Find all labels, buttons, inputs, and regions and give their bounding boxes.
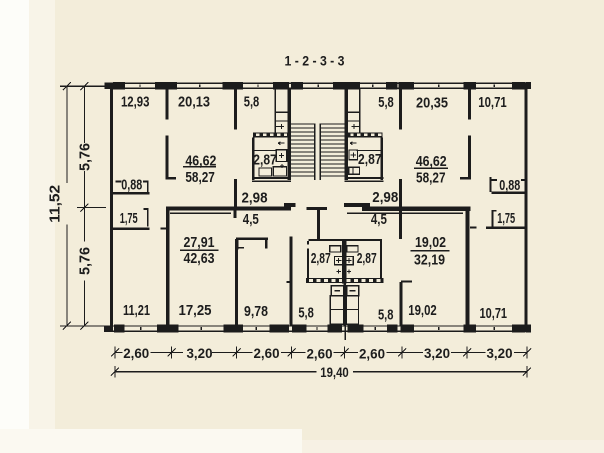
svg-text:10,71: 10,71 <box>478 94 507 111</box>
svg-text:2,87: 2,87 <box>358 151 382 168</box>
svg-text:3,20: 3,20 <box>424 345 450 361</box>
svg-text:42,63: 42,63 <box>184 250 215 267</box>
svg-text:2,60: 2,60 <box>123 345 149 361</box>
svg-text:12,93: 12,93 <box>121 93 150 110</box>
svg-text:19,02: 19,02 <box>415 234 446 251</box>
svg-text:20,35: 20,35 <box>416 95 448 112</box>
svg-text:11,21: 11,21 <box>123 302 150 319</box>
svg-text:58,27: 58,27 <box>185 169 215 186</box>
svg-text:5,8: 5,8 <box>378 306 394 323</box>
svg-text:58,27: 58,27 <box>416 170 446 187</box>
svg-text:2,87: 2,87 <box>311 250 331 267</box>
svg-text:3,20: 3,20 <box>187 345 213 361</box>
svg-text:17,25: 17,25 <box>179 302 212 319</box>
svg-text:19,40: 19,40 <box>320 364 349 380</box>
svg-text:3,20: 3,20 <box>487 345 513 361</box>
svg-text:2,87: 2,87 <box>357 250 377 267</box>
svg-text:0,88: 0,88 <box>499 177 520 194</box>
svg-text:5,8: 5,8 <box>244 93 260 110</box>
svg-text:19,02: 19,02 <box>408 302 437 319</box>
svg-text:46,62: 46,62 <box>416 153 447 170</box>
svg-text:4,5: 4,5 <box>371 211 387 228</box>
svg-text:5,76: 5,76 <box>77 247 94 275</box>
svg-text:0,88: 0,88 <box>121 176 142 193</box>
svg-text:2,98: 2,98 <box>372 189 398 206</box>
svg-text:4,5: 4,5 <box>243 211 259 228</box>
svg-text:10,71: 10,71 <box>480 305 508 322</box>
svg-text:20,13: 20,13 <box>178 93 210 110</box>
svg-text:1,75: 1,75 <box>497 210 515 227</box>
svg-text:5,8: 5,8 <box>298 305 314 322</box>
svg-text:2,60: 2,60 <box>359 346 385 362</box>
svg-text:9,78: 9,78 <box>244 303 268 320</box>
svg-text:2,60: 2,60 <box>307 345 333 361</box>
svg-text:2,87: 2,87 <box>253 151 277 168</box>
svg-text:5,8: 5,8 <box>378 94 394 111</box>
svg-text:2,60: 2,60 <box>254 345 280 361</box>
svg-text:1 - 2 - 3 - 3: 1 - 2 - 3 - 3 <box>285 53 345 69</box>
svg-text:32,19: 32,19 <box>414 251 445 268</box>
svg-text:5,76: 5,76 <box>77 143 94 171</box>
svg-text:27,91: 27,91 <box>184 234 215 251</box>
svg-text:1,75: 1,75 <box>120 210 138 227</box>
svg-text:11,52: 11,52 <box>47 185 64 223</box>
svg-text:2,98: 2,98 <box>242 189 268 206</box>
